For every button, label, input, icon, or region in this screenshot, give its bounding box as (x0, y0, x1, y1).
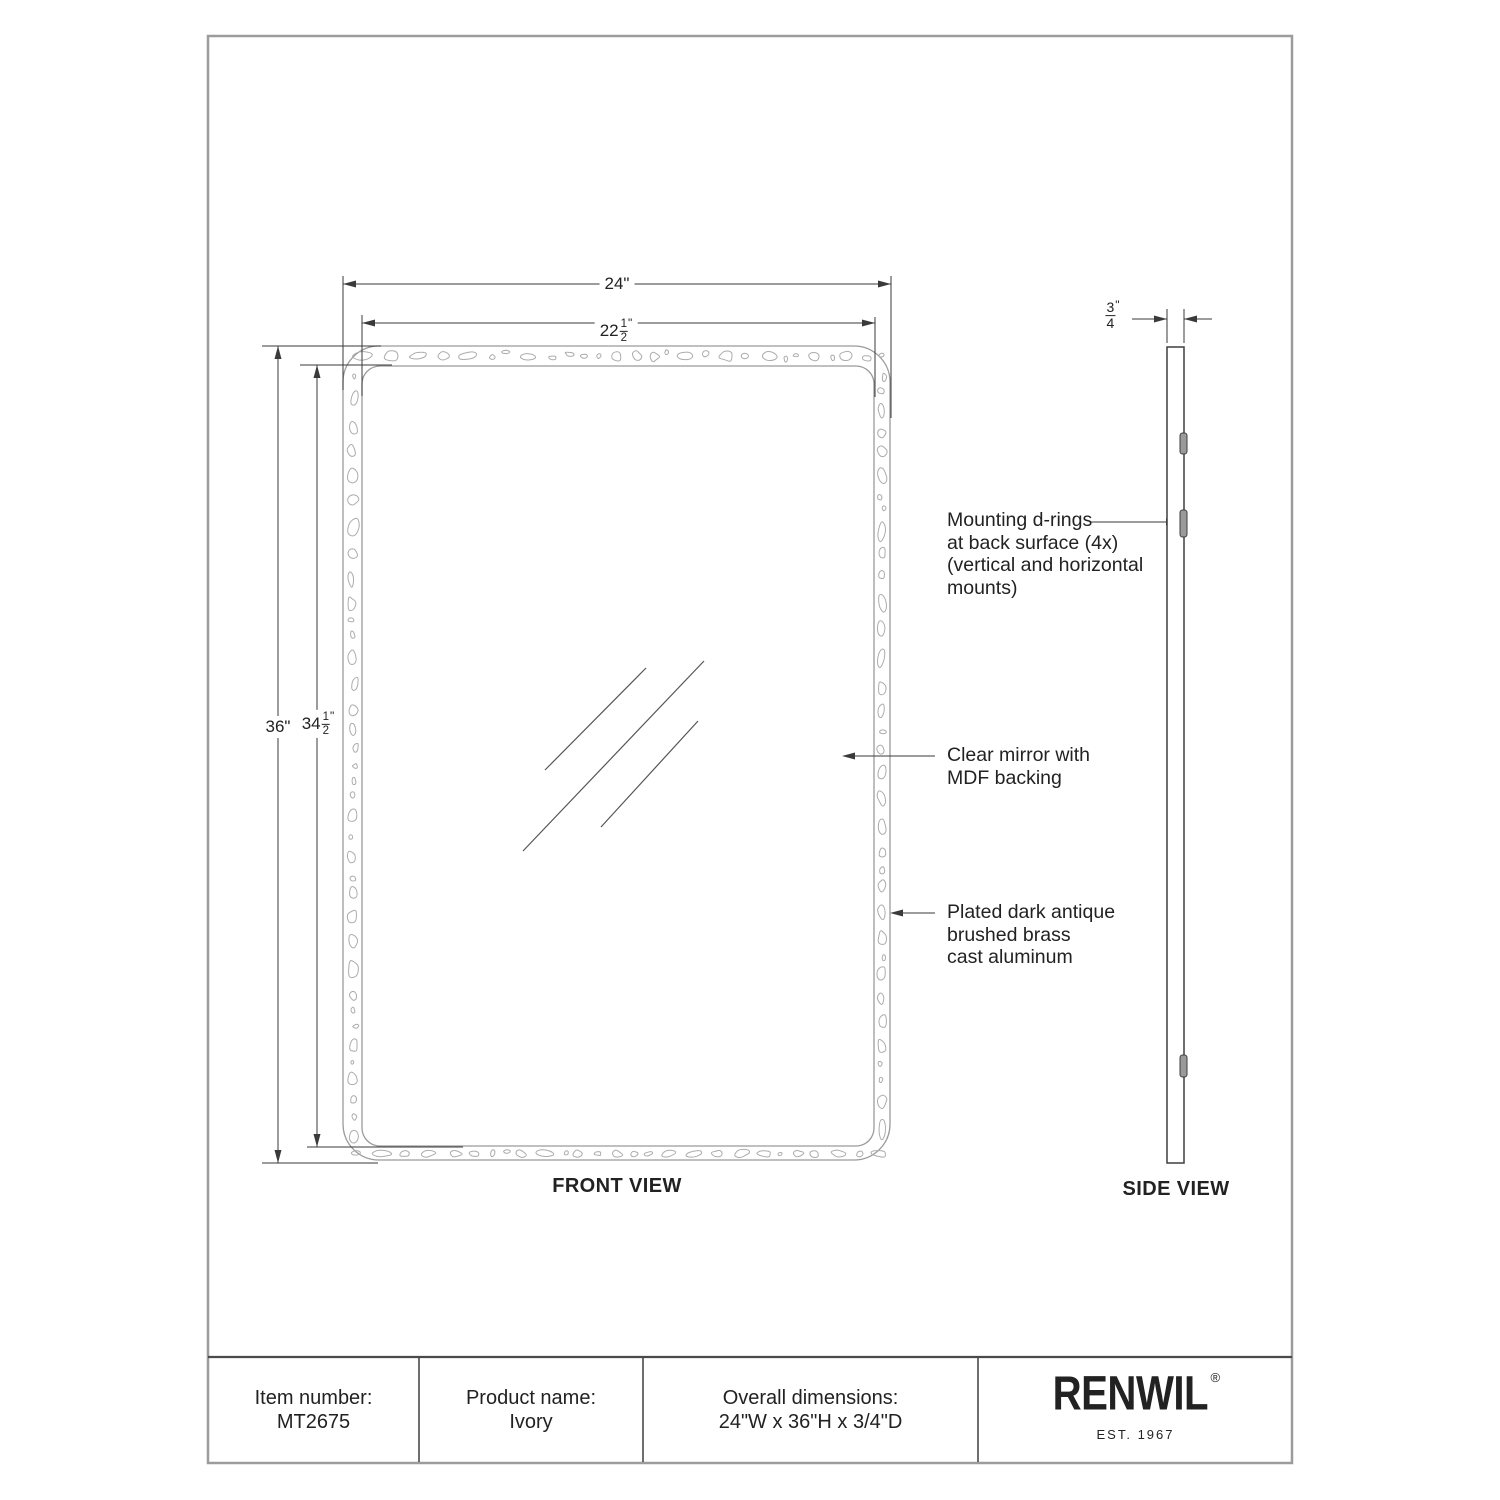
dimension-label-depth: 3 4 " (1099, 299, 1124, 333)
dimension-label-height-outer: 36" (261, 716, 296, 738)
spec-sheet: 24" 22 1 2 " 36" 34 1 2 " 3 4 " Mounting… (0, 0, 1500, 1500)
overall-dimensions-value: 24"W x 36"H x 3/4"D (719, 1410, 903, 1435)
d-ring (1180, 433, 1187, 454)
annotation-mounting-d-rings: Mounting d-rings at back surface (4x) (v… (947, 509, 1143, 599)
brand-established: EST. 1967 (1097, 1423, 1175, 1448)
d-ring (1180, 1055, 1187, 1077)
annotation-line: at back surface (4x) (947, 532, 1143, 555)
annotation-frame-finish: Plated dark antique brushed brass cast a… (947, 901, 1115, 969)
fraction: 3 4 (1105, 300, 1115, 332)
overall-dimensions-label: Overall dimensions: (723, 1386, 899, 1411)
dimension-arrow (878, 281, 891, 288)
annotation-clear-mirror: Clear mirror with MDF backing (947, 744, 1090, 789)
annotation-line: MDF backing (947, 767, 1090, 790)
dimension-arrow (862, 320, 875, 327)
dimension-arrow (343, 281, 356, 288)
inch-mark: " (628, 316, 632, 330)
annotation-line: mounts) (947, 577, 1143, 600)
fraction-denominator: 2 (323, 725, 329, 738)
fraction-denominator: 2 (621, 332, 627, 345)
item-number-value: MT2675 (277, 1410, 350, 1435)
annotation-line: cast aluminum (947, 946, 1115, 969)
sheet-border (208, 36, 1292, 1463)
side-view-drawing (1167, 347, 1187, 1163)
dimension-label-width-outer: 24" (600, 273, 635, 295)
d-ring (1180, 510, 1187, 537)
front-view-label: FRONT VIEW (552, 1175, 682, 1198)
inch-mark: " (1115, 298, 1119, 312)
mirror-frame-inner-outline (362, 366, 874, 1146)
title-block-cell-item-number: Item number: MT2675 (208, 1358, 419, 1462)
fraction-numerator: 1 (620, 318, 628, 332)
product-name-value: Ivory (509, 1410, 552, 1435)
leader-arrow (890, 910, 903, 917)
dimension-arrow (275, 1150, 282, 1163)
dimension-text: 24" (605, 274, 630, 294)
fraction-numerator: 3 (1105, 300, 1115, 316)
front-view-drawing (343, 346, 890, 1160)
brand-name: RENWIL (1052, 1369, 1208, 1417)
fraction: 1 2 (620, 318, 628, 344)
fraction: 1 2 (322, 711, 330, 737)
annotation-line: brushed brass (947, 924, 1115, 947)
dimension-arrow (314, 365, 321, 378)
mirror-reflection-lines (523, 661, 704, 851)
dimension-arrow (1154, 316, 1167, 323)
fraction-denominator: 4 (1106, 317, 1114, 332)
title-block-cell-product-name: Product name: Ivory (420, 1358, 642, 1462)
dimension-whole: 34 (302, 714, 321, 734)
dimension-whole: 22 (600, 321, 619, 341)
dimension-arrow (1184, 316, 1197, 323)
registered-trademark-icon: ® (1211, 1371, 1221, 1384)
title-block-cell-brand: RENWIL ® EST. 1967 (979, 1358, 1292, 1462)
renwil-logo: RENWIL ® (1051, 1373, 1220, 1414)
dimension-arrow (314, 1134, 321, 1147)
annotation-line: Plated dark antique (947, 901, 1115, 924)
dimension-label-height-inner: 34 1 2 " (297, 710, 340, 738)
fraction-numerator: 1 (322, 711, 330, 725)
annotation-line: Clear mirror with (947, 744, 1090, 767)
frame-hammered-texture (347, 350, 887, 1158)
dimension-text: 36" (266, 717, 291, 737)
dimension-arrow (275, 346, 282, 359)
annotation-line: (vertical and horizontal (947, 554, 1143, 577)
item-number-label: Item number: (255, 1386, 373, 1411)
product-name-label: Product name: (466, 1386, 596, 1411)
dimension-lines (262, 276, 1212, 1163)
dimension-arrow (362, 320, 375, 327)
drawing-linework (0, 0, 1500, 1500)
side-view-bar (1167, 347, 1184, 1163)
leader-arrow (842, 753, 855, 760)
annotation-line: Mounting d-rings (947, 509, 1143, 532)
title-block-cell-dimensions: Overall dimensions: 24"W x 36"H x 3/4"D (644, 1358, 977, 1462)
side-view-label: SIDE VIEW (1123, 1178, 1230, 1201)
dimension-label-width-inner: 22 1 2 " (595, 317, 638, 345)
inch-mark: " (330, 709, 334, 723)
